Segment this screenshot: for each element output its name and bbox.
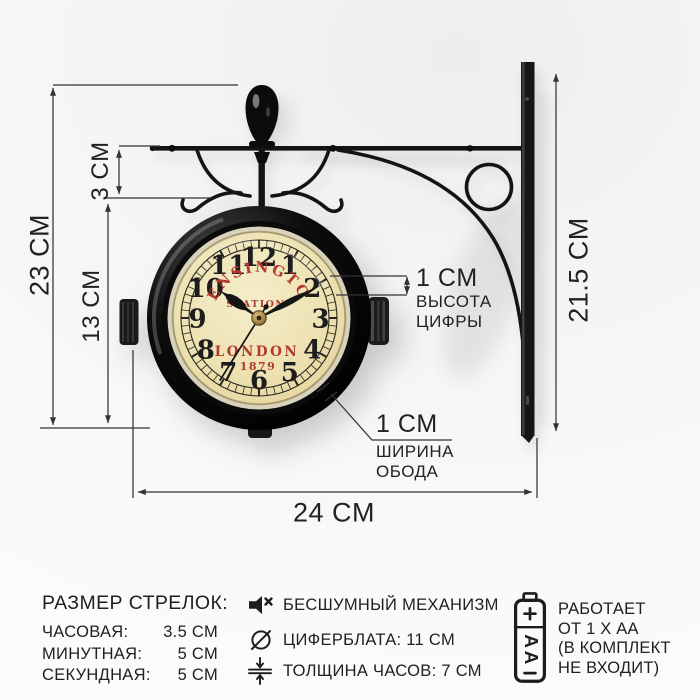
digit-height-value: 1 CM: [416, 265, 492, 292]
digit-height-caption2: ЦИФРЫ: [416, 312, 492, 332]
feature-silent-text: БЕСШУМНЫЙ МЕХАНИЗМ: [283, 596, 499, 615]
hand-minute-value: 5 СМ: [178, 644, 218, 666]
feature-silent: БЕСШУМНЫЙ МЕХАНИЗМ: [246, 594, 499, 616]
label-wall-bar-height: 21.5 CM: [564, 217, 595, 323]
rim-width-caption1: ШИРИНА: [376, 442, 454, 462]
digit-height-caption1: ВЫСОТА: [416, 292, 492, 312]
feature-thickness: ТОЛЩИНА ЧАСОВ: 7 СМ: [246, 656, 482, 686]
hand-hour-value: 3.5 СМ: [163, 622, 218, 644]
battery-icon: AA: [512, 591, 548, 685]
hand-row-hour: ЧАСОВАЯ: 3.5 СМ: [42, 622, 218, 644]
label-total-height: 23 CM: [25, 214, 56, 296]
hand-minute-label: МИНУТНАЯ:: [42, 644, 142, 666]
power-text: РАБОТАЕТ ОТ 1 Х АА (В КОМПЛЕКТ НЕ ВХОДИТ…: [558, 591, 671, 685]
hands-size-title: РАЗМЕР СТРЕЛОК:: [42, 592, 222, 615]
feature-dial-text: ЦИФЕРБЛАТА: 11 СМ: [283, 631, 455, 650]
battery-plus: [525, 608, 536, 619]
feature-dial-diameter: ЦИФЕРБЛАТА: 11 СМ: [248, 627, 455, 653]
label-clock-height: 13 CM: [78, 269, 106, 342]
label-total-width: 24 CM: [293, 498, 375, 529]
power-line-1: РАБОТАЕТ: [558, 600, 671, 620]
product-dimension-photo: 121234567891011 KENSINGTON STATION LONDO…: [0, 0, 700, 700]
battery-label: AA: [520, 634, 541, 667]
label-bracket-drop: 3 CM: [87, 141, 115, 200]
rim-width-value: 1 CM: [376, 411, 454, 438]
hands-size-panel: РАЗМЕР СТРЕЛОК: ЧАСОВАЯ: 3.5 СМ МИНУТНАЯ…: [42, 592, 222, 687]
rim-width-caption2: ОБОДА: [376, 462, 454, 482]
diameter-icon: [248, 627, 274, 653]
hand-second-label: СЕКУНДНАЯ:: [42, 665, 151, 687]
hand-hour-label: ЧАСОВАЯ:: [42, 622, 128, 644]
power-line-3: (В КОМПЛЕКТ: [558, 639, 671, 659]
hand-row-minute: МИНУТНАЯ: 5 СМ: [42, 644, 218, 666]
power-line-2: ОТ 1 Х АА: [558, 620, 671, 640]
label-rim-width: 1 CM ШИРИНА ОБОДА: [376, 411, 454, 482]
hand-second-value: 5 СМ: [178, 665, 218, 687]
label-digit-height: 1 CM ВЫСОТА ЦИФРЫ: [416, 265, 492, 332]
hand-row-second: СЕКУНДНАЯ: 5 СМ: [42, 665, 218, 687]
power-panel: AA РАБОТАЕТ ОТ 1 Х АА (В КОМПЛЕКТ НЕ ВХО…: [512, 591, 671, 685]
thickness-icon: [246, 656, 274, 686]
power-line-4: НЕ ВХОДИТ): [558, 659, 671, 679]
feature-thickness-text: ТОЛЩИНА ЧАСОВ: 7 СМ: [283, 662, 482, 681]
muted-speaker-icon: [246, 594, 274, 616]
